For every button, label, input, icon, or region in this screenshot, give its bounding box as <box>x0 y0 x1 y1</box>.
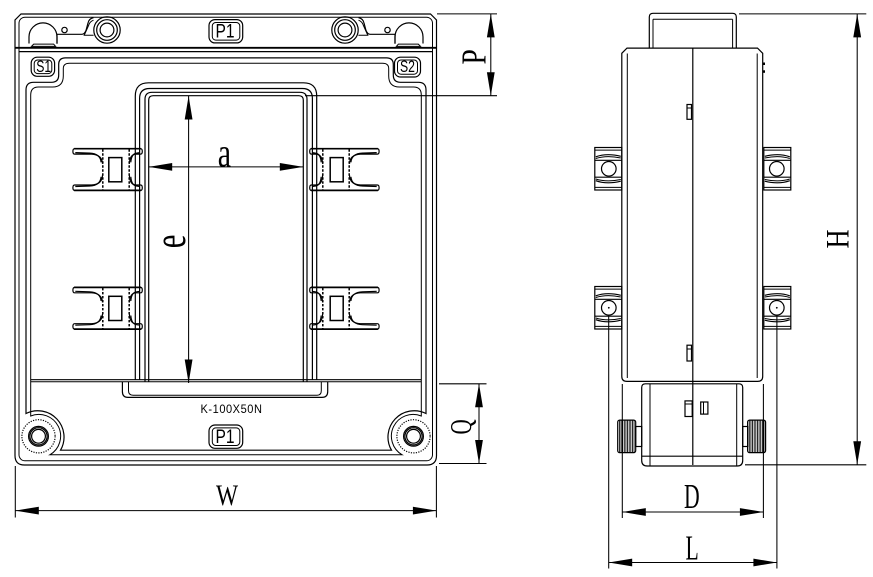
svg-text:L: L <box>686 529 699 567</box>
svg-text:P: P <box>455 49 494 64</box>
svg-text:H: H <box>820 229 856 248</box>
svg-text:a: a <box>218 130 231 176</box>
svg-text:S1: S1 <box>36 58 51 76</box>
svg-text:W: W <box>216 478 239 511</box>
svg-text:K-100X50N: K-100X50N <box>201 404 263 416</box>
svg-text:D: D <box>684 478 700 516</box>
svg-text:e: e <box>145 235 196 249</box>
svg-text:P1: P1 <box>216 426 235 448</box>
svg-text:Q: Q <box>443 419 478 434</box>
svg-text:P1: P1 <box>216 20 235 42</box>
svg-text:S2: S2 <box>400 58 415 76</box>
